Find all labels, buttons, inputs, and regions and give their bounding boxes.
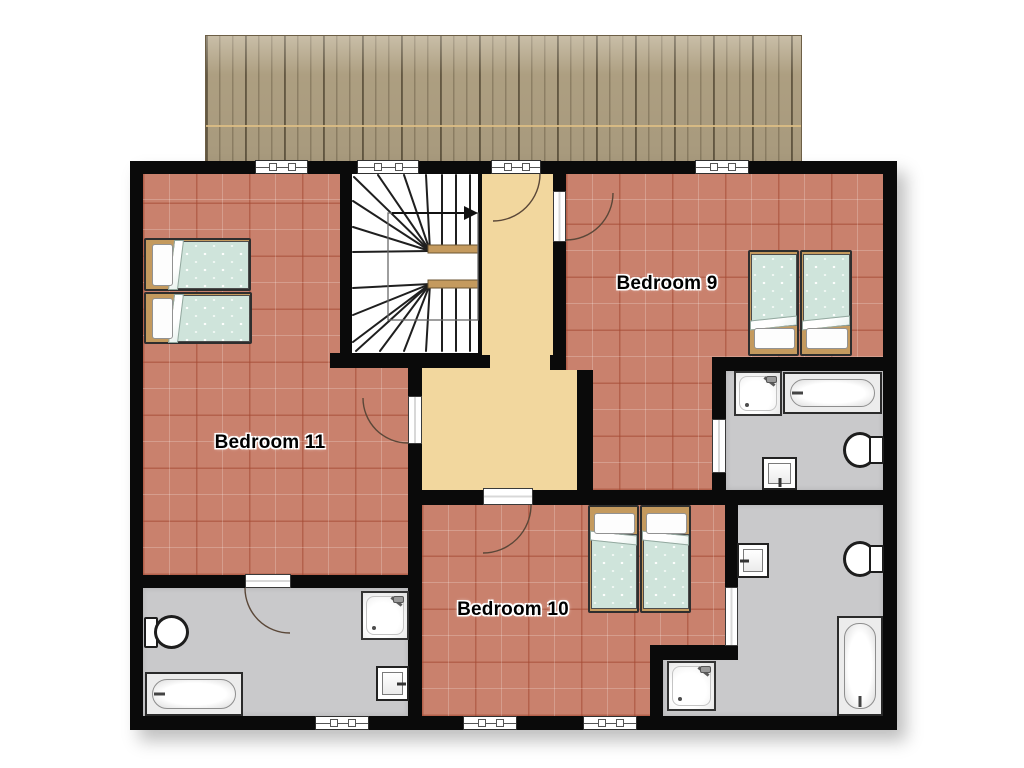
stair-tread-landing (428, 280, 478, 288)
door-arc (363, 398, 408, 443)
window (583, 716, 637, 730)
staircase (353, 175, 470, 351)
door-leaf (553, 191, 566, 242)
stairs-and-door-arcs (0, 0, 1024, 768)
room-label-bedroom-10: Bedroom 10 (428, 599, 598, 621)
room-label-bedroom-11: Bedroom 11 (185, 432, 355, 454)
window (463, 716, 517, 730)
door-leaf (483, 488, 533, 505)
stair-tread-landing (428, 245, 478, 253)
door-arc (483, 505, 531, 553)
door-leaf (725, 587, 738, 646)
stair-rail-outline (388, 213, 478, 320)
window (315, 716, 369, 730)
door-arc (566, 193, 613, 240)
balcony-door-window (491, 160, 541, 174)
window (357, 160, 419, 174)
window (255, 160, 308, 174)
room-label-bedroom-9: Bedroom 9 (582, 273, 752, 295)
door-leaf (408, 396, 422, 444)
door-leaf (712, 419, 726, 473)
window (695, 160, 749, 174)
floor-plan: Bedroom 11 Bedroom 9 Bedroom 10 (0, 0, 1024, 768)
door-arc (245, 588, 290, 633)
door-leaf (245, 574, 291, 588)
door-arc (493, 174, 540, 221)
